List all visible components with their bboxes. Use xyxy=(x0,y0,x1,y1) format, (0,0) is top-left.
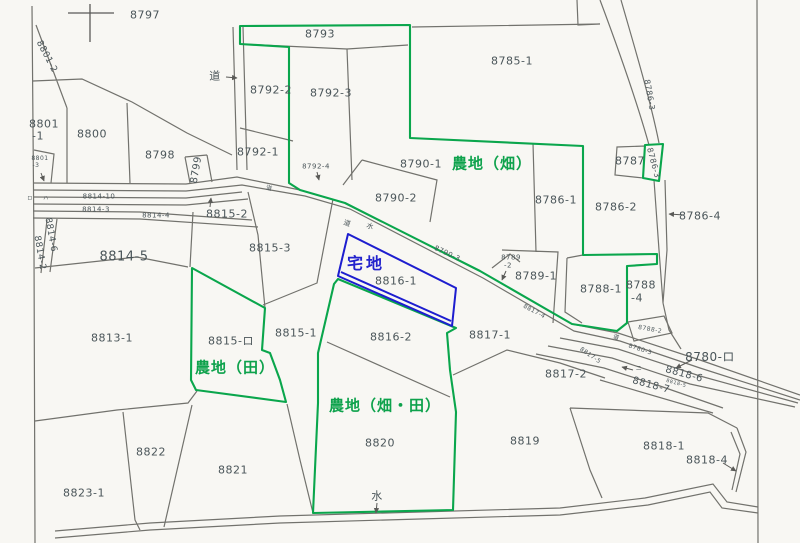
parcel-label: 8792-3 xyxy=(310,88,352,99)
parcel-label: 8801 xyxy=(29,119,59,130)
parcel-label: 8788-1 xyxy=(580,284,622,295)
parcel-label: 8818-1 xyxy=(643,441,685,452)
parcel-label: 8789-1 xyxy=(515,271,557,282)
parcel-label: 8797 xyxy=(130,10,160,21)
parcel-label: 8792-4 xyxy=(302,164,330,171)
parcel-label: 8790-1 xyxy=(400,159,442,170)
parcel-label: 8817-2 xyxy=(545,369,587,380)
parcel-label: 8815-ロ xyxy=(208,336,254,347)
parcel-label: -3 xyxy=(33,163,40,169)
parcel-label: 8814-10 xyxy=(83,194,116,201)
parcel-label: 8819 xyxy=(510,436,540,447)
parcel-label: 8820 xyxy=(365,438,395,449)
parcel-label: 8821 xyxy=(218,465,248,476)
parcel-label: 8786-2 xyxy=(595,202,637,213)
parcel-label: 8823-1 xyxy=(63,488,105,499)
parcel-label: 8814-4 xyxy=(142,213,170,220)
parcel-label: 8786-1 xyxy=(535,195,577,206)
parcel-label: 8792-2 xyxy=(250,85,292,96)
parcel-label: 8813-1 xyxy=(91,333,133,344)
landuse-label-hatake: 農地（畑） xyxy=(452,157,532,172)
parcel-label: 8814-3 xyxy=(82,207,110,214)
landuse-label-ta: 農地（田） xyxy=(195,361,275,376)
parcel-label: 8798 xyxy=(145,150,175,161)
parcel-label: -1 xyxy=(32,131,44,142)
parcel-label: 8792-1 xyxy=(237,147,279,158)
road-label: 道 xyxy=(265,185,273,192)
landuse-label-hatake-ta: 農地（畑・田） xyxy=(329,399,441,414)
parcel-label: 8793 xyxy=(305,29,335,40)
survey-cross-icon xyxy=(68,4,114,42)
parcel-label: 8780-ロ xyxy=(685,351,735,363)
parcel-label: 8787 xyxy=(615,156,645,167)
parcel-label: 8785-1 xyxy=(491,56,533,67)
parcel-label: 8790-2 xyxy=(375,193,417,204)
parcel-label: 8817-1 xyxy=(469,330,511,341)
parcel-label: ハ xyxy=(43,197,49,202)
parcel-label: -4 xyxy=(631,293,643,304)
parcel-label: -2 xyxy=(504,263,512,270)
parcel-label: 8800 xyxy=(77,129,107,140)
parcel-label: 8818-4 xyxy=(686,455,728,466)
parcel-label: 8816-2 xyxy=(370,332,412,343)
parcel-boundaries xyxy=(0,0,800,543)
parcel-label: 8815-2 xyxy=(206,209,248,220)
parcel-label: 8815-1 xyxy=(275,328,317,339)
parcel-label: ロ xyxy=(27,197,33,202)
parcel-label: ニ xyxy=(636,366,643,372)
parcel-label: 8814-5 xyxy=(99,251,148,264)
landuse-label-takuchi: 宅地 xyxy=(347,256,385,272)
parcel-label: 8789 xyxy=(501,255,521,262)
water-label: 水 xyxy=(371,491,383,502)
parcel-label: 8788 xyxy=(626,280,656,291)
parcel-label: 8815-3 xyxy=(249,243,291,254)
parcel-label: 8822 xyxy=(136,447,166,458)
cadastral-map: 879787938785-18801-2道8792-28792-38786-38… xyxy=(0,0,800,543)
road-label: 道 xyxy=(209,71,221,82)
parcel-label: 8816-1 xyxy=(375,276,417,287)
parcel-label: 8786-4 xyxy=(679,211,721,222)
